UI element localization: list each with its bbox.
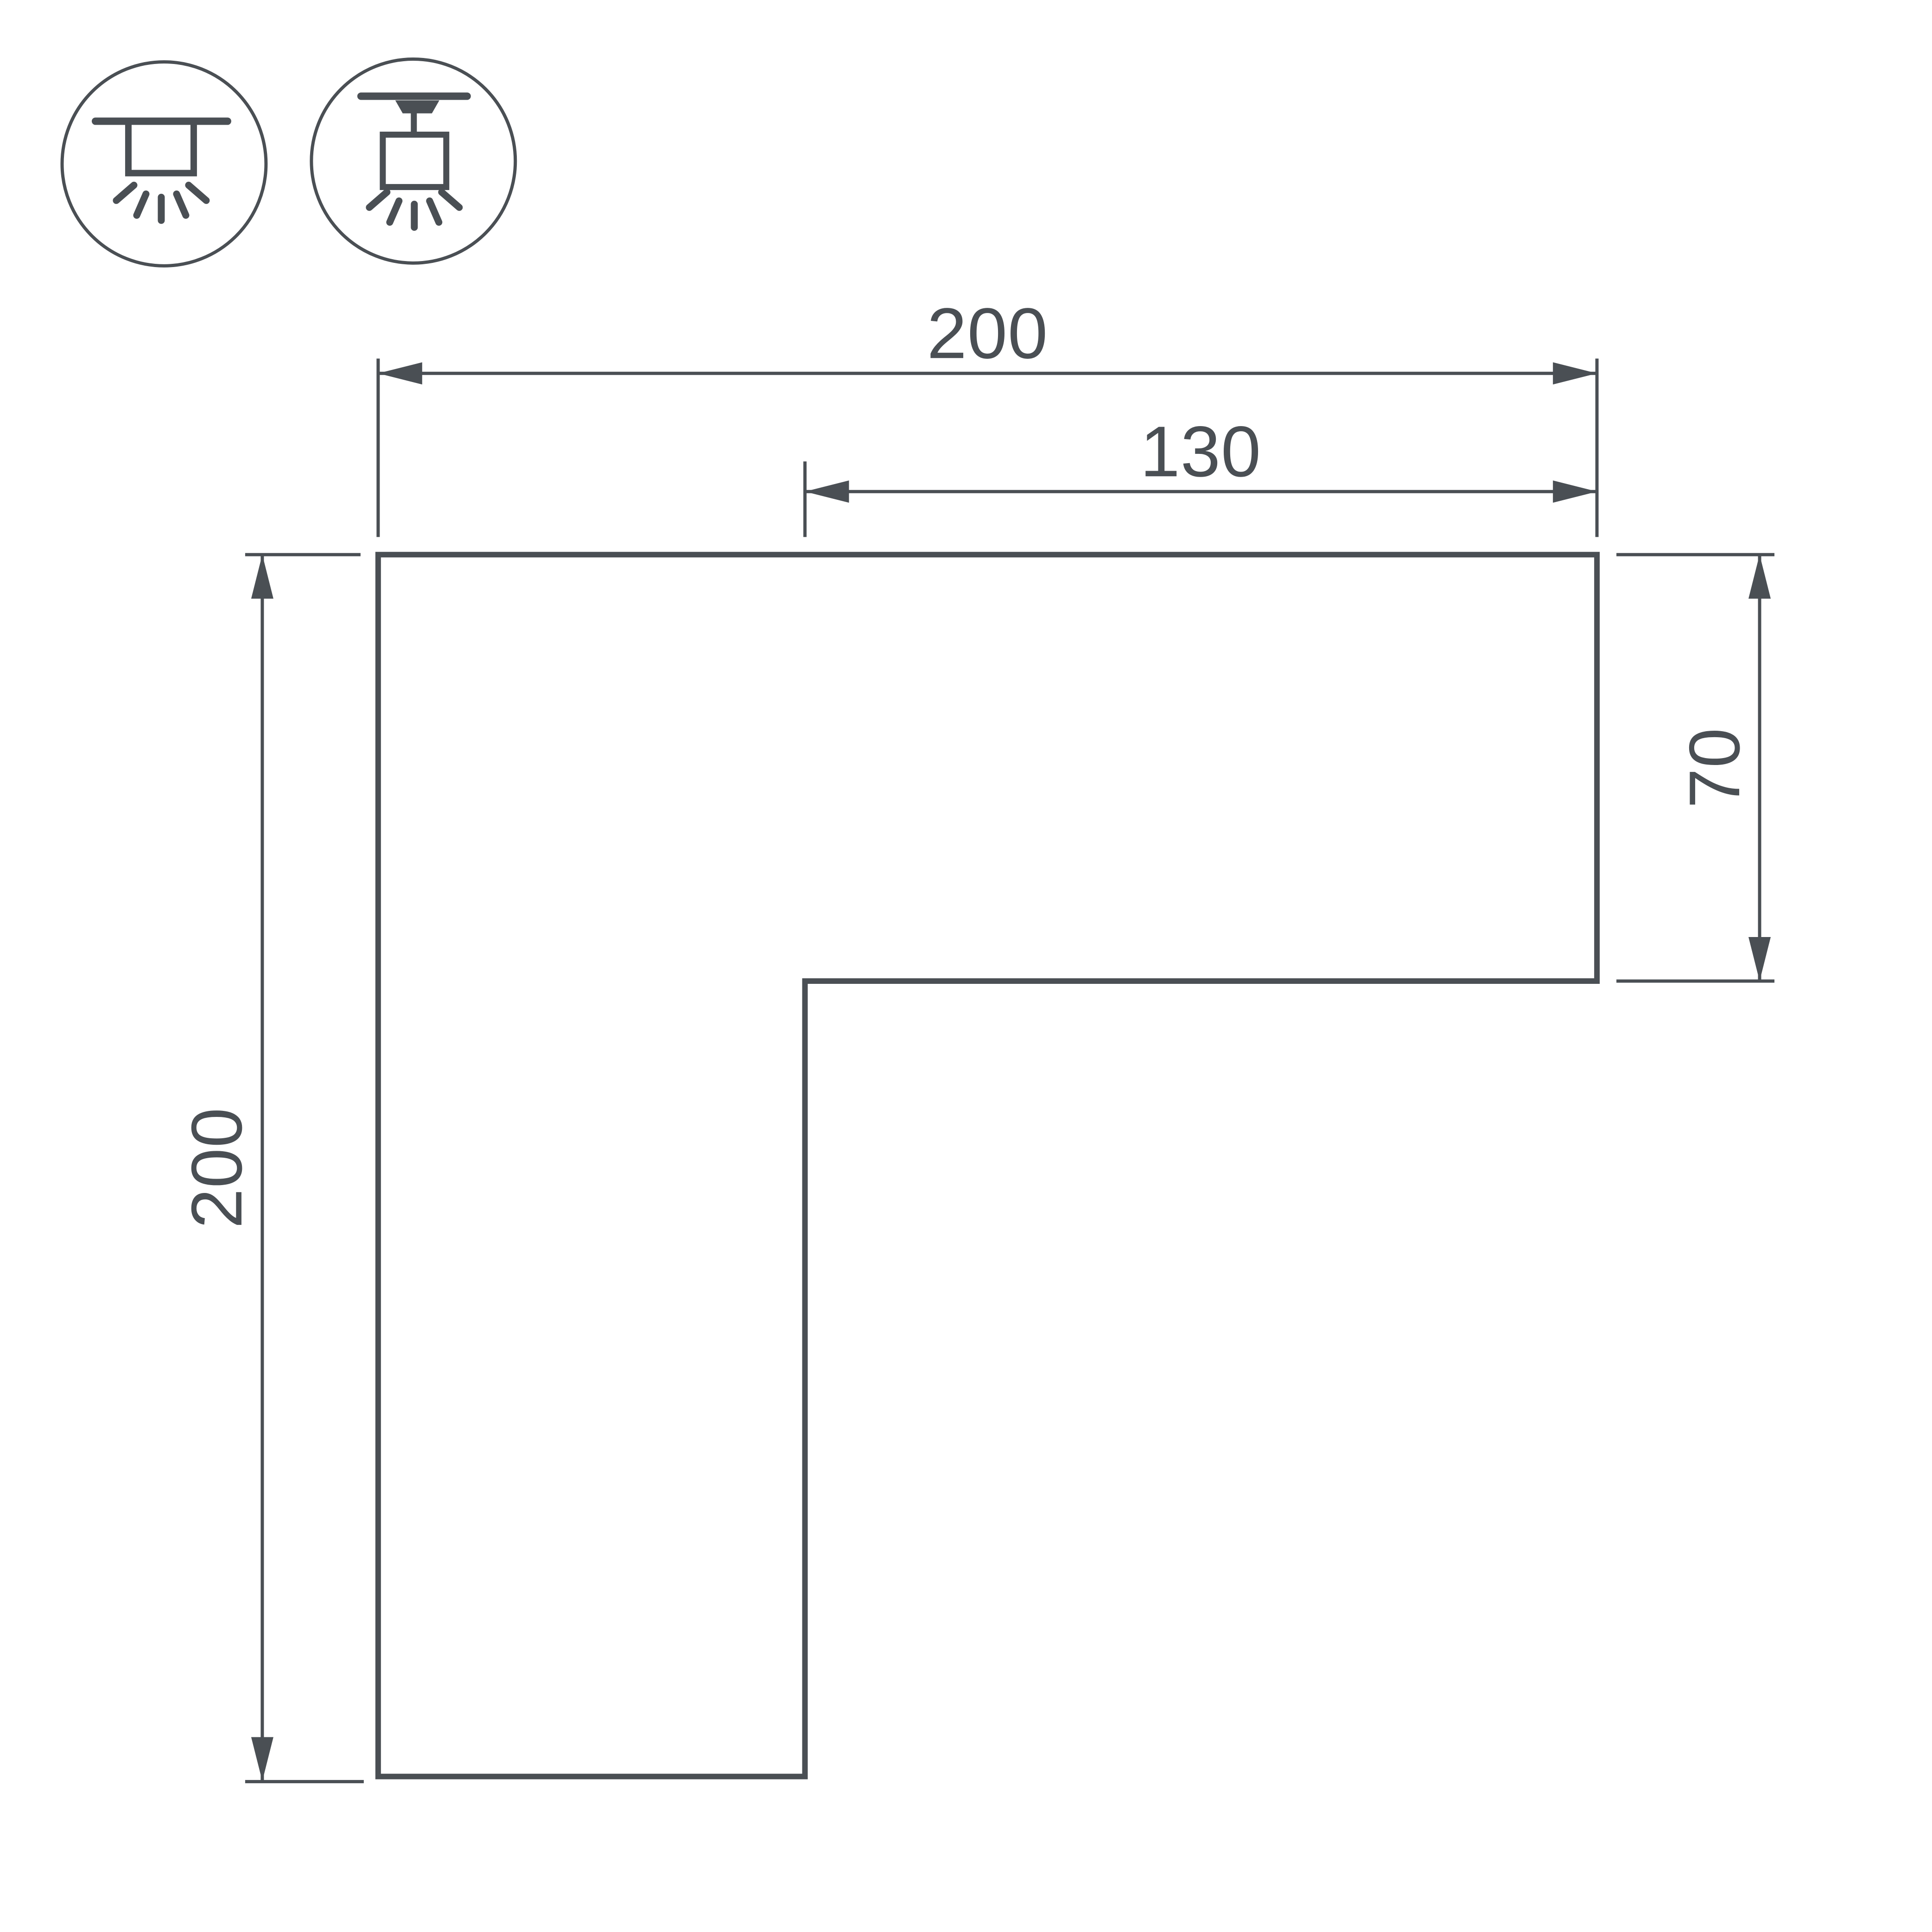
technical-drawing-canvas: 200 130 200 70 bbox=[0, 0, 1932, 1932]
dimension-label-right-height: 70 bbox=[1674, 727, 1754, 808]
dimension-drawing-svg: 200 130 200 70 bbox=[0, 0, 1932, 1932]
dimension-label-left-height: 200 bbox=[176, 1107, 256, 1229]
drawing-background bbox=[0, 0, 1932, 1932]
dimension-label-inner-width: 130 bbox=[1140, 411, 1261, 491]
track-adapter-icon bbox=[395, 100, 439, 113]
dimension-label-top-width: 200 bbox=[927, 293, 1048, 373]
